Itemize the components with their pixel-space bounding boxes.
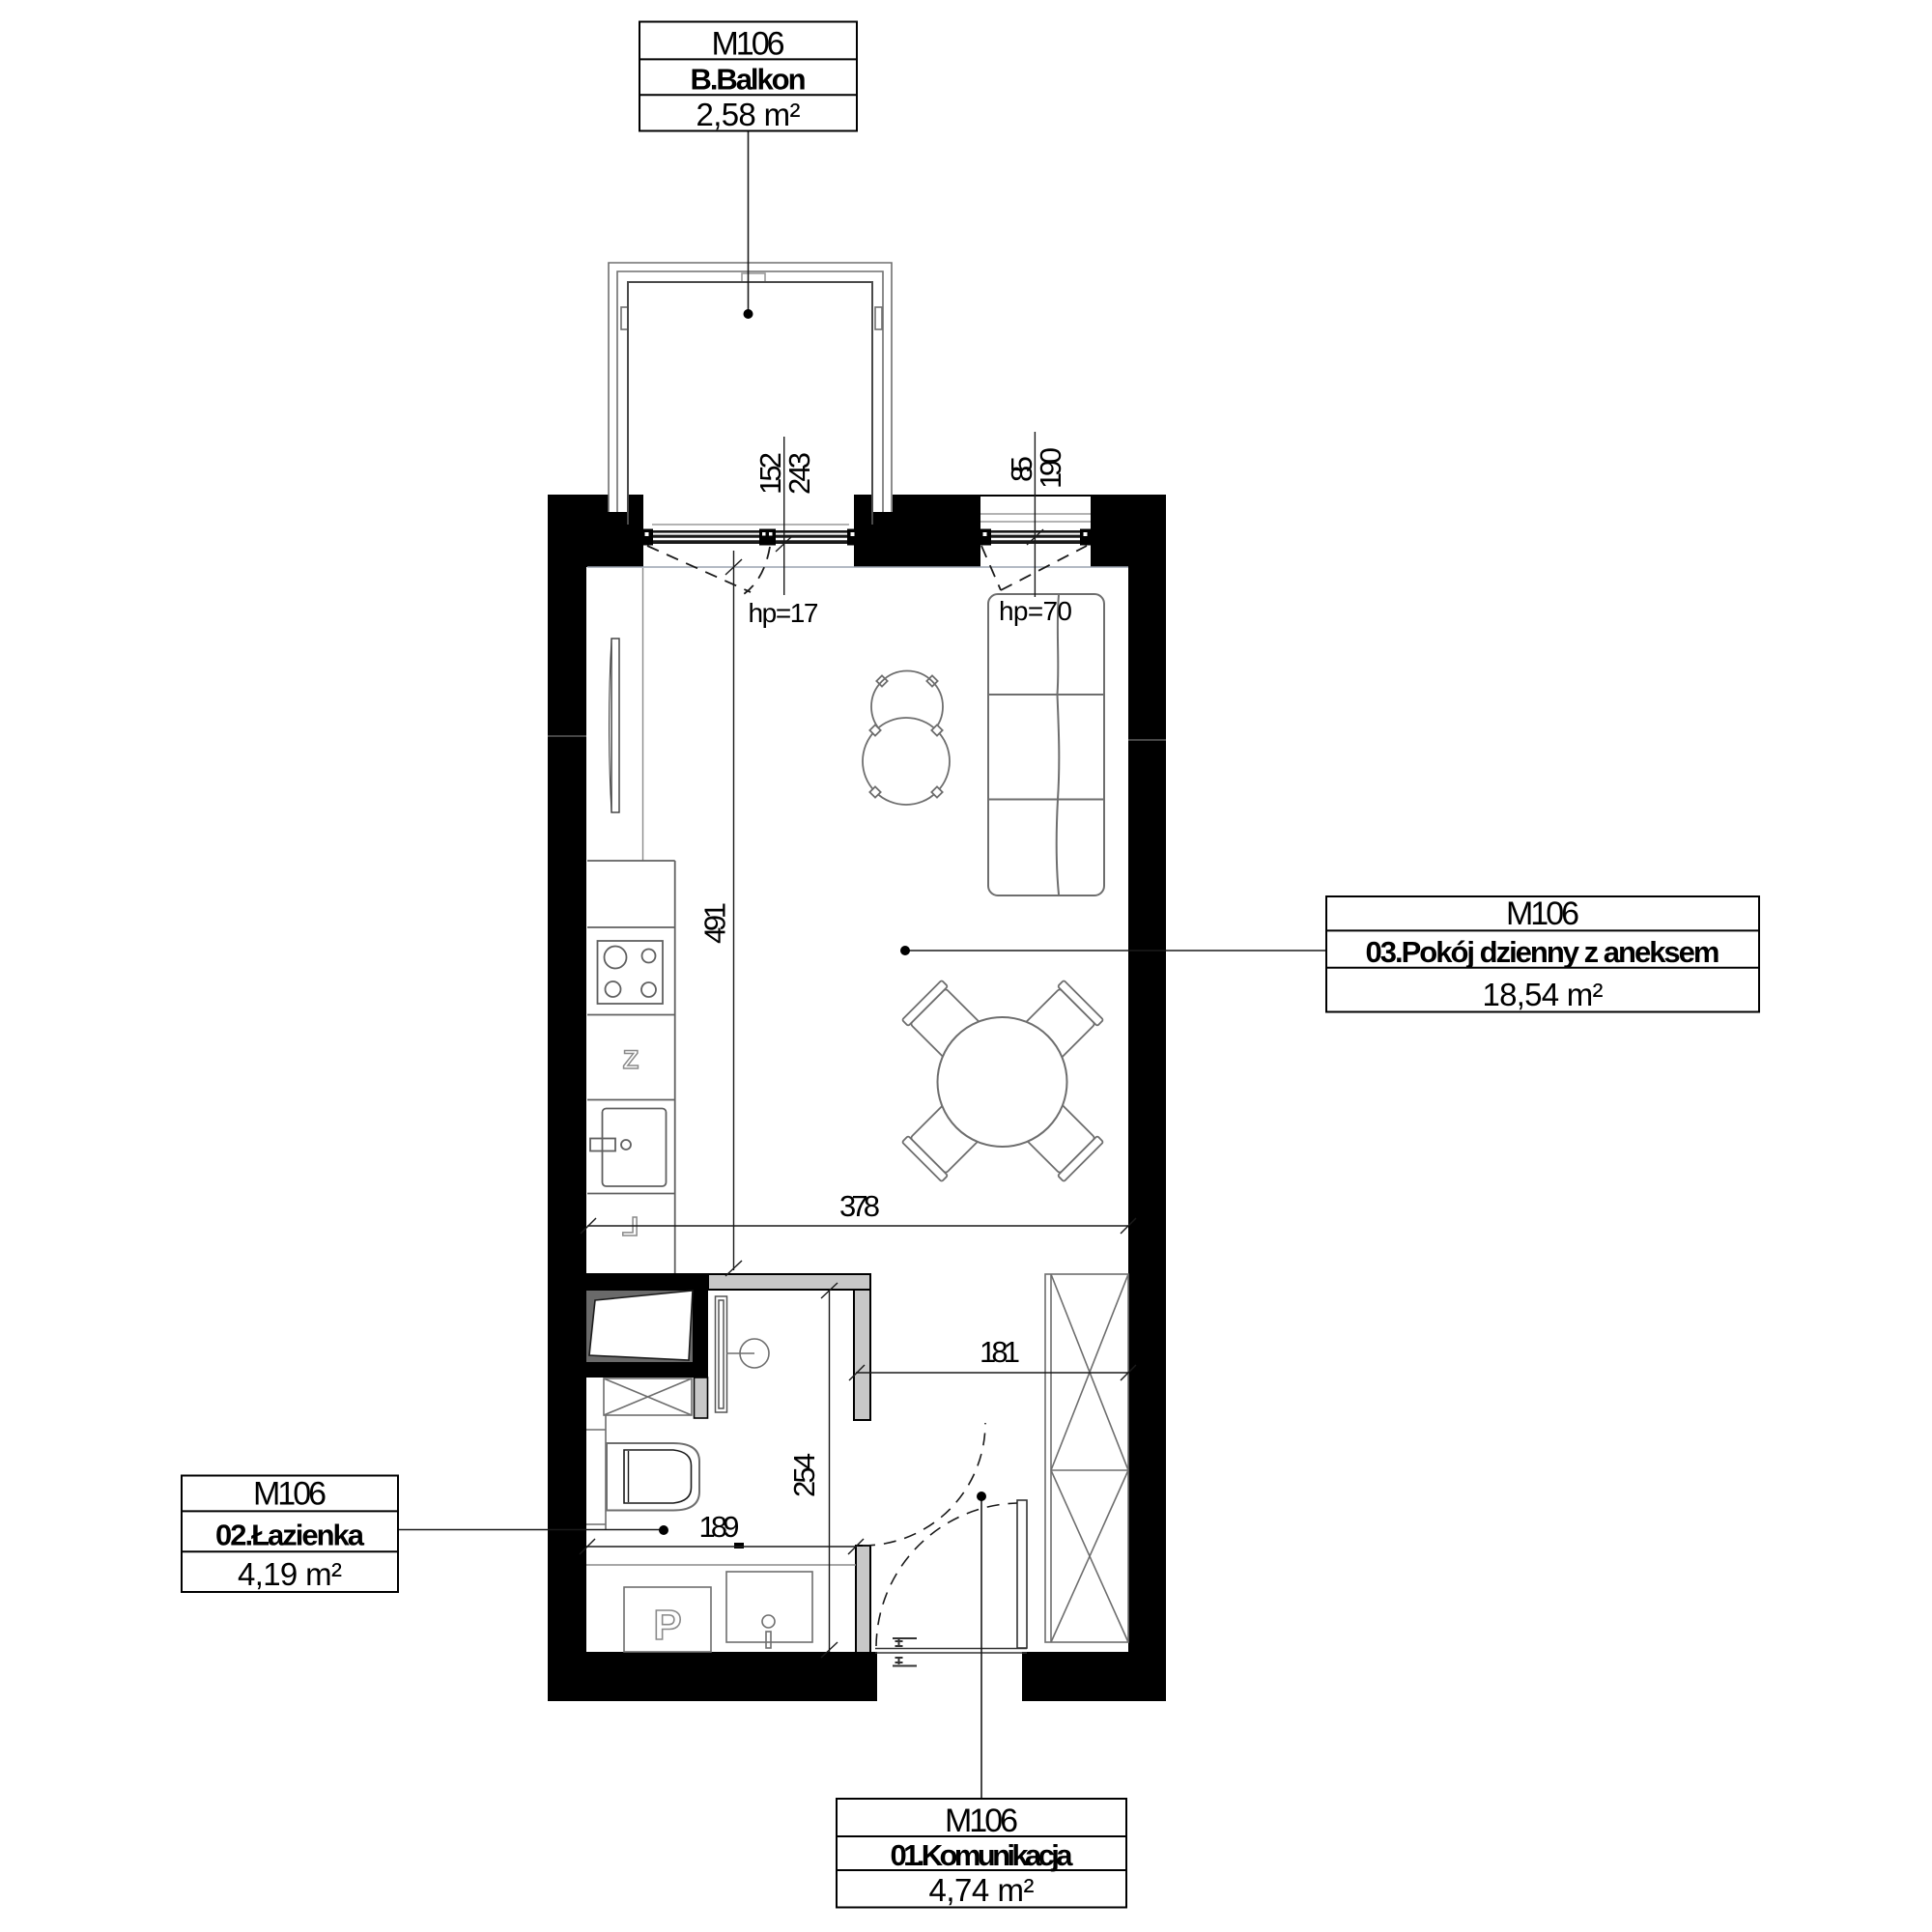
svg-text:491: 491 [698,902,732,944]
svg-text:189: 189 [699,1510,740,1544]
svg-text:18,54 m²: 18,54 m² [1483,977,1604,1012]
svg-text:B.Balkon: B.Balkon [691,63,807,97]
svg-text:4,19 m²: 4,19 m² [238,1556,342,1592]
svg-text:Z: Z [623,1045,639,1074]
svg-text:M106: M106 [1506,895,1579,932]
svg-text:hp=70: hp=70 [999,596,1072,626]
svg-text:378: 378 [839,1189,880,1223]
svg-text:254: 254 [787,1453,821,1497]
svg-text:02.Łazienka: 02.Łazienka [215,1519,365,1552]
svg-text:2,58 m²: 2,58 m² [696,97,801,132]
svg-text:190: 190 [1034,447,1067,489]
svg-text:243: 243 [782,452,816,495]
svg-text:01.Komunikacja: 01.Komunikacja [891,1838,1074,1872]
svg-text:03.Pokój dzienny z aneksem: 03.Pokój dzienny z aneksem [1366,935,1720,969]
svg-text:hp=17: hp=17 [749,598,819,628]
svg-text:M106: M106 [712,26,785,63]
svg-text:M106: M106 [945,1803,1018,1839]
svg-text:181: 181 [980,1335,1020,1369]
svg-text:P: P [653,1602,681,1649]
svg-text:4,74 m²: 4,74 m² [929,1872,1035,1908]
svg-text:M106: M106 [253,1476,327,1513]
